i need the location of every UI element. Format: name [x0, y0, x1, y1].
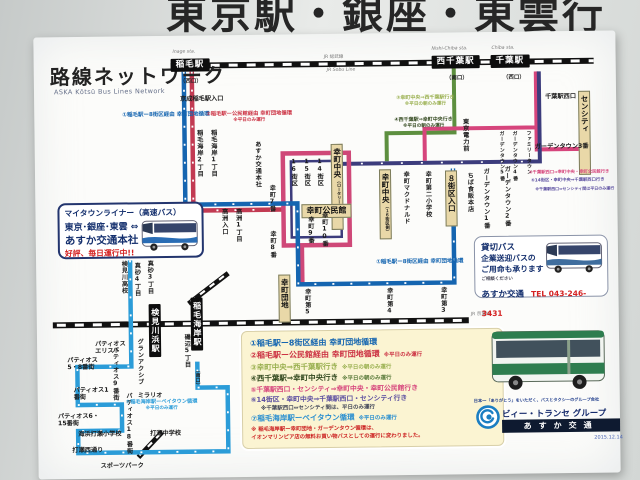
bus-stop-label: 稲毛海岸1丁目	[209, 129, 216, 177]
bus-stop-label: 14街区	[316, 158, 323, 186]
jr-sobu-line	[171, 61, 594, 66]
station-nishichiba: 西千葉駅	[432, 55, 480, 68]
charter-bus-image	[544, 240, 604, 275]
bus-stop-label: 打瀬中学校	[150, 430, 181, 438]
stop-box-saiwaicho-chuo-2: 幸町中央 （１６街区側）	[379, 169, 392, 239]
legend-footnote-line: イオンマリンピア店の無料お買い物バスとしての運行に変わりました。	[251, 433, 423, 441]
route-legend: ①稲毛駅ー8街区経由 幸町団地循環 ②稲毛駅ー公民館経由 幸町団地循環※平日のみ…	[241, 328, 504, 449]
bus-stop-label: 検見川高校	[120, 260, 127, 294]
stop-box-8gaiku-entrance: ８街区入口	[445, 170, 458, 226]
legend-text: ⑤千葉駅西口・センシティ⇒幸町中央・幸町公民館行き	[251, 383, 418, 393]
charter-bus-ad: 貸切バス 企業送迎バスの ご用命も承ります ご相談ください あすか交通 TEL …	[474, 235, 609, 299]
bus-stop-label: ファミリータウン	[525, 131, 531, 175]
bus-stop-label: 京成稲毛駅入口	[180, 95, 223, 103]
station-kemigawahama: 検見川浜駅	[149, 304, 162, 357]
stop-box-label: 幸町中央	[333, 148, 341, 178]
bus-stop-label: 真砂4丁目	[133, 262, 140, 296]
photo-background: 東京駅・銀座・東雲行	[0, 0, 640, 480]
bee-transse-logo-icon	[476, 405, 500, 429]
map-note-line: ③幸町中央⇒西千葉駅行き	[396, 94, 455, 101]
bus-stop-label: 幸町7番	[268, 185, 275, 213]
map-note-route6: ⑥14街区・幸町中央⇒千葉駅西口行き	[531, 178, 604, 185]
legend-text: ③幸町中央⇒西千葉駅行き	[250, 362, 338, 372]
nishichiba-station-en: Nishi-Chiba sta.	[431, 46, 467, 51]
map-note-route6-sub: ※千葉駅西口⇔センシティ間は平日のみ運行	[535, 185, 614, 191]
legend-text: ⑦稲毛海岸駅ーベイタウン循環	[251, 413, 355, 423]
stop-box-saiwai-danchi: 幸町団地	[278, 274, 290, 322]
map-note-line: ※平日の朝のみ運行	[394, 123, 453, 130]
legend-note: ※平日のみ運行	[359, 415, 397, 421]
nishichiba-route	[386, 68, 455, 161]
bus-stop-label: 幸町10番	[320, 212, 327, 247]
chiba-west-exit-label: 千葉駅西口	[545, 93, 576, 101]
map-note-route2: ②稲毛駅ー公民館経由 幸町団地循環 ※平日のみ運行	[206, 110, 292, 124]
bus-stop-label: ガーデンタウン1番	[482, 168, 489, 229]
bus-stop-label: パティオス5・8番街	[67, 357, 107, 372]
station-chiba: 千葉駅	[491, 55, 530, 68]
bus-stop-label: 幸町8番	[269, 231, 276, 259]
poster-date: 2015.12.14	[594, 434, 623, 440]
map-note-route1-right: ①稲毛駅ー8街区経由 幸町団地循環	[376, 258, 463, 266]
bus-stop-label: パティオス1番街	[74, 387, 110, 402]
bus-stop-label: 幸町第4	[385, 287, 392, 315]
legend-footnote: ※ 稲毛海岸駅ー幸町団地・ガーデンタウン循環は、 イオンマリンピア店の無料お買い…	[251, 424, 495, 442]
company-banner: あすか交通	[502, 418, 620, 432]
bus-stop-label: 高洲入口	[220, 208, 227, 235]
map-note-line: ※平日の朝のみ運行	[396, 101, 455, 108]
legend-row: ⑦稲毛海岸駅ーベイタウン循環※平日のみ運行	[251, 410, 495, 424]
map-note-line: ※平日のみ運行	[126, 406, 198, 413]
jr-sobu-label-en: JR Sobu Line	[327, 68, 356, 73]
bus-stop-label: 幸町第二小学校	[424, 171, 431, 218]
stop-box-sencity: センシティ	[578, 91, 591, 175]
legend-text: ④西千葉駅⇒幸町中央行き	[250, 373, 338, 383]
highway-bus-image	[141, 218, 199, 253]
bus-stop-label: 幸町マクドナルド	[402, 171, 409, 225]
legend-footnote-line: ※ 稲毛海岸駅ー幸町団地・ガーデンタウン循環は、	[251, 426, 377, 434]
stop-box-sublabel: （１６街区側）	[381, 204, 389, 233]
bus-stop-label: パティオス9番街	[111, 347, 118, 401]
bus-stop-label: 真砂3丁目	[146, 260, 153, 294]
bus-stop-label: あすか交通本社	[254, 141, 261, 188]
route-map-poster: 路線ネットワーク ASKA Kōtsū Bus Lines Network JR…	[33, 30, 620, 479]
bus-stop-label: パティオス6・15番街	[58, 413, 102, 428]
station-inagekaigan: 稲毛海岸駅	[191, 298, 204, 351]
map-note-route1-left: ①稲毛駅ー8街区経由 幸町団地循環	[122, 111, 209, 119]
map-note-line: ※平日のみ運行	[206, 118, 292, 125]
map-note-line: ④西千葉駅⇒幸町中央行き	[394, 116, 453, 123]
station-inage: 稲毛駅	[171, 58, 210, 71]
bus-stop-label: 幸町第5	[303, 288, 310, 316]
bus-stop-label: 海浜打瀬小学校	[78, 431, 121, 439]
bus-stop-label: 高洲1丁目	[234, 208, 241, 242]
bus-stop-label: 幸町9番	[307, 216, 314, 244]
legend-text: ②稲毛駅ー公民館経由 幸町団地循環	[250, 349, 380, 360]
map-note-route5: ⑤千葉駅西口⇒幸町中央・幸町公民館行き	[529, 170, 609, 177]
jr-keiyo-line	[53, 320, 469, 325]
bus-stop-label: ガーデンタウン4番	[511, 131, 517, 182]
bus-stop-label: スポーツパーク	[101, 462, 144, 470]
bus-stop-label: 15街区	[303, 158, 310, 186]
bus-stop-label: 幸町第3	[439, 287, 446, 315]
map-note-line: ②稲毛駅ー公民館経由 幸町団地循環	[206, 110, 292, 117]
stop-box-label: 幸町中央	[381, 173, 389, 203]
mytown-liner-ad: マイタウンライナー（高速バス） 東京･銀座･東雲 ⇔ あすか交通本社 好評、毎日…	[57, 202, 204, 260]
bus-stop-label: ガーデンタウン5番	[498, 131, 504, 182]
poster-subtitle: ASKA Kōtsū Bus Lines Network	[54, 87, 165, 96]
chiba-station-en: Chiba sta.	[491, 46, 514, 51]
bus-stop-label: グランアクシブ	[136, 338, 143, 385]
bus-stop-label: 稲毛海岸2丁目	[195, 130, 202, 178]
legend-note: ※平日の朝のみ運行	[342, 375, 391, 382]
station-inage-exit: （西口）	[180, 77, 202, 85]
map-note-route3: ③幸町中央⇒西千葉駅行き ※平日の朝のみ運行	[396, 94, 455, 108]
station-inagekaigan-exit: （南口）	[194, 368, 199, 388]
charter-contact-row: あすか交通 TEL 043-246-3431	[481, 281, 601, 320]
charter-company: あすか交通	[481, 290, 524, 301]
legend-text: ※千葉駅西口⇔センシティ間は、平日のみ運行	[261, 404, 375, 411]
bus-stop-label: ガーデンタウン3番	[535, 143, 589, 151]
station-chiba-exit: （西口）	[503, 73, 525, 81]
map-note-route4: ④西千葉駅⇒幸町中央行き ※平日の朝のみ運行	[394, 116, 453, 130]
legend-note: ※平日の朝のみ運行	[342, 364, 391, 371]
bus-stop-label: 16街区	[290, 158, 297, 186]
bus-stop-label: 打瀬西通り	[72, 447, 103, 455]
bus-stop-label: ちば食販本店	[466, 172, 473, 212]
legend-note: ※平日のみ運行	[384, 352, 422, 358]
bus-stop-label: 東京電力前	[461, 118, 468, 152]
bus-stop-label: 磯辺5丁目	[183, 334, 190, 368]
legend-text: ⑥14街区・幸町中央⇒千葉駅西口・センシティ行き	[251, 394, 408, 404]
jr-sobu-label-ja: JR 総武線	[324, 54, 344, 60]
city-bus-image	[489, 327, 608, 392]
legend-text: ①稲毛駅ー8街区経由 幸町団地循環	[250, 337, 377, 348]
map-note-route7: ⑦稲毛海岸駅ーベイタウン循環 ※平日のみ運行	[126, 399, 198, 413]
inage-station-en: Inage sta.	[172, 50, 195, 55]
map-note-line: ⑦稲毛海岸駅ーベイタウン循環	[126, 399, 198, 406]
station-nishichiba-exit: （南口）	[446, 73, 468, 81]
